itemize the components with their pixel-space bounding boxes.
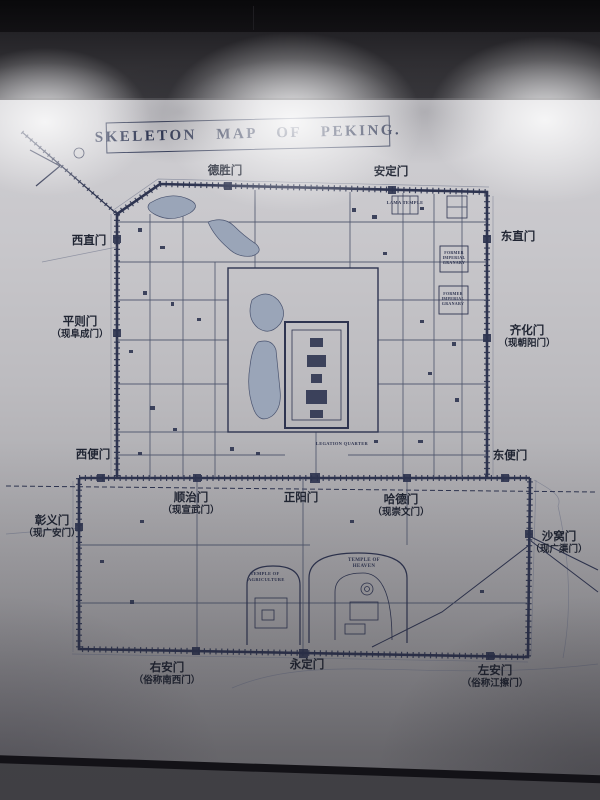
- gate-name: 安定门: [374, 164, 409, 178]
- gate-label-hademen: 哈德门（现崇文门）: [372, 493, 429, 518]
- gate-name: 东直门: [501, 229, 536, 243]
- gate-current-name: （现广安门）: [23, 528, 80, 539]
- lake-beihai: [250, 294, 284, 331]
- gate-current-name: （现阜成门）: [51, 329, 108, 340]
- gate-name: 齐化门: [510, 323, 545, 337]
- gate-name: 右安门: [150, 660, 185, 674]
- moat-lines: [72, 179, 569, 662]
- gate-current-name: （现朝阳门）: [498, 338, 555, 349]
- gate-current-name: （俗称南西门）: [134, 675, 201, 686]
- gate-label-zhengyangmen: 正阳门: [284, 491, 319, 505]
- granary-label-1: FORMER IMPERIAL GRANARY: [442, 250, 466, 265]
- gate-label-dongbianmen: 东便门: [493, 449, 528, 463]
- gate-name: 西便门: [76, 447, 111, 461]
- gate-label-pingzemen: 平则门（现阜成门）: [51, 315, 108, 340]
- granary-label-2: FORMER IMPERIAL GRANARY: [441, 291, 465, 306]
- lake-jishuitan: [148, 196, 196, 219]
- gate-label-qihuamen: 齐化门（现朝阳门）: [498, 324, 555, 349]
- lake-zhongnanhai: [249, 341, 281, 419]
- lama-temple-label: LAMA TEMPLE: [387, 200, 424, 206]
- gate-current-name: （俗称江擦门）: [462, 678, 529, 689]
- gate-current-name: （现崇文门）: [372, 507, 429, 518]
- gate-name: 永定门: [290, 657, 325, 671]
- gate-name: 西直门: [72, 233, 107, 247]
- gate-label-zuoanmen: 左安门（俗称江擦门）: [462, 664, 529, 689]
- gate-label-xibianmen: 西便门: [76, 448, 111, 462]
- gate-current-name: （现宣武门）: [162, 505, 219, 516]
- church-block: [447, 196, 467, 218]
- gate-name: 彰义门: [35, 513, 70, 527]
- gate-name: 正阳门: [284, 490, 319, 504]
- temple-of-agriculture-label: TEMPLE OF AGRICULTURE: [248, 571, 282, 582]
- gate-name: 东便门: [493, 448, 528, 462]
- gate-label-yongdingmen: 永定门: [290, 658, 325, 672]
- gate-name: 德胜门: [208, 163, 243, 177]
- gate-label-dongzhimen: 东直门: [501, 230, 536, 244]
- gate-label-shunzhimen: 顺治门（现宣武门）: [162, 491, 219, 516]
- gate-label-andingmen: 安定门: [374, 165, 409, 179]
- gate-label-xizhimen: 西直门: [72, 234, 107, 248]
- light-track-beam: [0, 32, 600, 100]
- gate-label-zhangyimen: 彰义门（现广安门）: [23, 514, 80, 539]
- museum-wall-photo: SKELETON MAP OF PEKING. 德胜门 安定门 西直门 东直门 …: [0, 0, 600, 800]
- gate-name: 左安门: [478, 663, 513, 677]
- gate-name: 哈德门: [384, 492, 419, 506]
- temple-of-heaven-label: TEMPLE OF HEAVEN: [343, 558, 385, 571]
- ceiling-seam: [253, 6, 254, 30]
- gate-name: 顺治门: [174, 490, 209, 504]
- lake-shichahai: [208, 220, 259, 257]
- gate-name: 沙窝门: [542, 529, 577, 543]
- legation-quarter-label: LEGATION QUARTER: [316, 441, 368, 447]
- gate-label-shawomen: 沙窝门（现广渠门）: [530, 530, 587, 555]
- gate-name: 平则门: [63, 314, 98, 328]
- gate-label-deshengmen: 德胜门: [208, 164, 243, 178]
- lakes: [148, 196, 284, 419]
- gate-current-name: （现广渠门）: [530, 544, 587, 555]
- forbidden-city: [285, 322, 348, 428]
- ceiling-band: [0, 0, 600, 32]
- imperial-city: [228, 268, 378, 432]
- gate-label-youanmen: 右安门（俗称南西门）: [134, 661, 201, 686]
